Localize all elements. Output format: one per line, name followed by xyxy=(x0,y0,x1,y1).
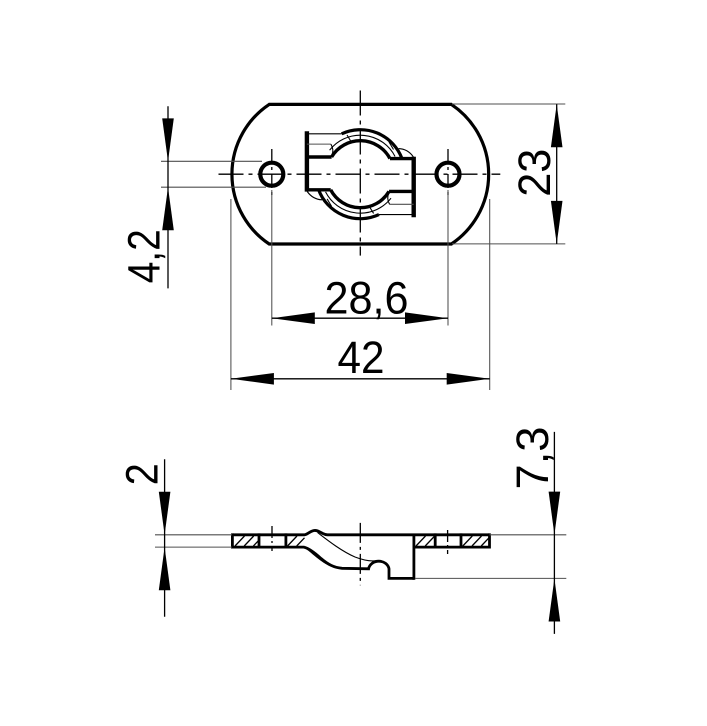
svg-text:4,2: 4,2 xyxy=(119,229,170,283)
svg-text:2: 2 xyxy=(117,463,168,485)
svg-text:23: 23 xyxy=(509,149,560,197)
svg-text:7,3: 7,3 xyxy=(507,427,558,490)
svg-text:28,6: 28,6 xyxy=(325,273,409,324)
svg-text:42: 42 xyxy=(338,332,385,383)
